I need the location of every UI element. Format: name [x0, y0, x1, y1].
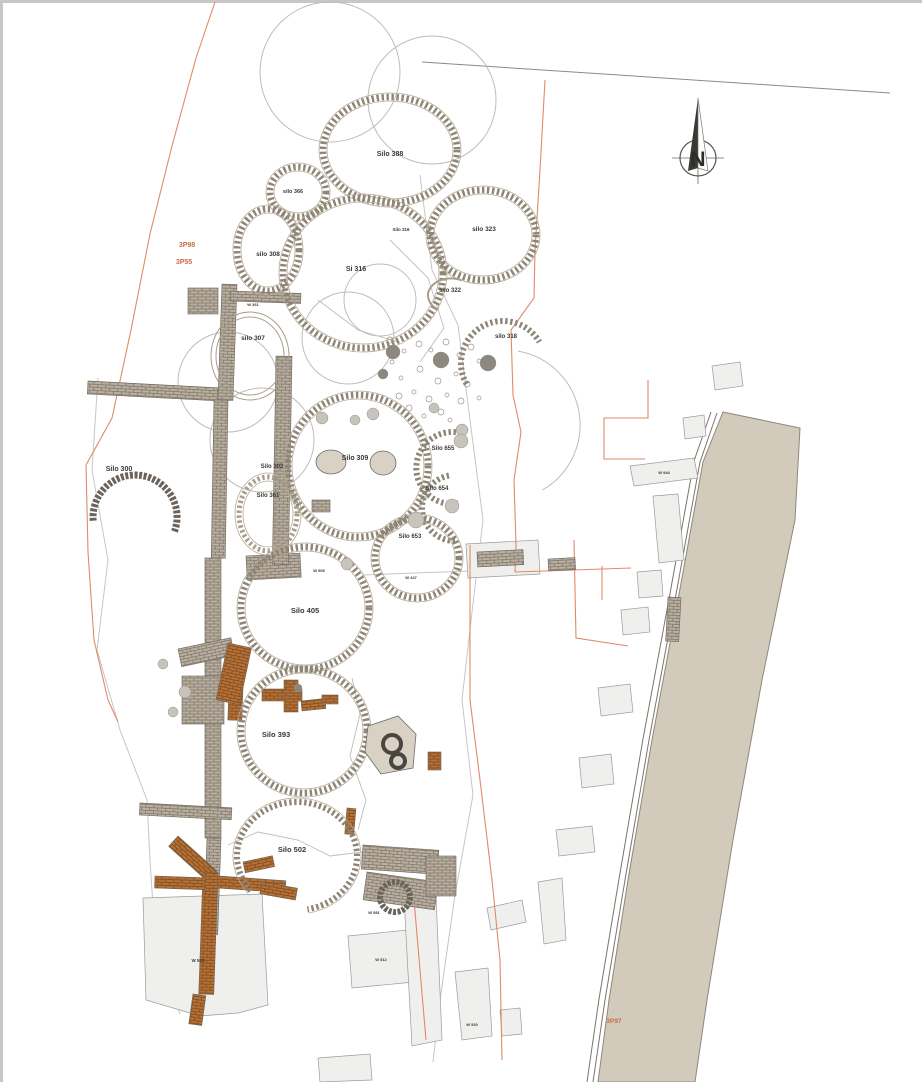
cadastral-line: [604, 380, 648, 459]
parcel: [487, 900, 526, 930]
feature-label: Silo 388: [377, 151, 404, 158]
parcel: [318, 1054, 372, 1082]
feature-label: silo 307: [241, 335, 265, 342]
pebble: [435, 378, 441, 384]
parcel: [538, 878, 566, 944]
tan-feature: [316, 450, 346, 474]
feature-label: W 944: [658, 470, 670, 475]
pit-feature: [367, 408, 379, 420]
feature-label: Silo 654: [426, 486, 449, 492]
cadastral-line: [574, 540, 628, 646]
pebble: [454, 372, 458, 376]
pebble: [390, 360, 394, 364]
pebble: [406, 405, 412, 411]
silo-316-inner: [287, 202, 439, 344]
pit-feature: [179, 686, 191, 698]
parcel: [500, 1008, 522, 1036]
rubble-patch: [312, 500, 330, 512]
survey-point-label: 3P55: [176, 259, 192, 266]
pit-feature: [454, 434, 468, 448]
stone-wall: [218, 284, 237, 400]
rubble-patch: [548, 558, 576, 571]
ochre-wall: [428, 752, 441, 770]
pit-feature: [350, 415, 360, 425]
feature-label: Silo 302: [261, 464, 284, 470]
pit-feature: [429, 403, 439, 413]
faint-arc: [518, 351, 580, 490]
silo-393-outer: [237, 665, 371, 797]
feature-label: Silo 361: [257, 493, 280, 499]
parcel: [404, 896, 442, 1046]
pit-feature: [341, 558, 353, 570]
feature-label: W 361: [247, 302, 259, 307]
pit-feature: [168, 707, 178, 717]
pebble: [396, 393, 402, 399]
silo-316-ring: [283, 198, 443, 348]
feature-label: W 525: [191, 958, 205, 963]
rubble-patch: [477, 550, 524, 567]
pit-feature: [158, 659, 168, 669]
pebble: [399, 376, 403, 380]
north-label: N: [690, 148, 705, 171]
pebble: [445, 393, 449, 397]
silo-308-outer: [233, 205, 303, 295]
stone-wall: [211, 400, 228, 558]
feature-label: W 447: [405, 575, 417, 580]
feature-label: Silo 653: [399, 534, 422, 540]
silo-393-ring: [241, 669, 367, 793]
feature-label: W 512: [375, 957, 387, 962]
feature-label: Silo 300: [106, 466, 133, 473]
silo-323-inner: [434, 194, 532, 276]
pit-feature: [378, 369, 388, 379]
parcel: [621, 607, 650, 635]
cadastral-line: [86, 2, 215, 722]
parcel: [598, 684, 633, 716]
pebble: [416, 341, 422, 347]
parcel: [712, 362, 743, 390]
silo-653-ring: [375, 518, 459, 598]
pebble: [429, 348, 433, 352]
survey-point-label: 3P98: [179, 242, 195, 249]
parcel: [556, 826, 595, 856]
pit-feature: [316, 412, 328, 424]
silo-653-inner: [379, 522, 455, 594]
ochre-wall: [155, 876, 205, 890]
rubble-patch: [666, 597, 681, 642]
pebble: [468, 344, 474, 350]
parcel: [637, 570, 663, 598]
pit-feature: [433, 352, 449, 368]
silo-308-ring: [237, 209, 299, 291]
pebble: [458, 398, 464, 404]
pebble: [422, 414, 426, 418]
feature-label: silo 318: [495, 334, 518, 340]
pebble: [402, 349, 406, 353]
feature-label: Silo 502: [278, 845, 306, 854]
ochre-wall: [322, 695, 338, 704]
stone-wall: [87, 381, 218, 401]
parcel: [455, 968, 492, 1040]
page-edge-left: [0, 0, 3, 1082]
silo-323-outer: [426, 186, 540, 284]
parcel: [683, 415, 706, 439]
faint-circle: [260, 2, 400, 142]
feature-label: Si 316: [346, 266, 366, 273]
ochre-wall: [243, 856, 275, 873]
stone-wall: [188, 288, 218, 314]
parcel: [653, 494, 684, 563]
feature-label: silo 323: [472, 226, 496, 233]
feature-label: silo 322: [439, 288, 462, 294]
ochre-wall: [260, 882, 298, 900]
pebble: [426, 396, 432, 402]
silo-300-ring: [93, 475, 177, 531]
pebble: [477, 396, 481, 400]
silo-388-outer: [319, 93, 461, 207]
silo-361-outer: [235, 473, 301, 555]
parcel: [579, 754, 614, 788]
trench-outline: [92, 378, 153, 906]
faint-circle: [344, 264, 416, 336]
silo-318-ring: [461, 321, 539, 384]
feature-label: Silo 316: [392, 227, 410, 232]
pit-feature: [445, 499, 459, 513]
feature-label: Silo 405: [291, 606, 319, 615]
survey-point-label: 3P97: [606, 1018, 622, 1025]
site-plan-canvas: Silo 388silo 366silo 308Si 316Silo 316si…: [0, 0, 922, 1082]
pit-feature: [294, 684, 302, 692]
pit-feature: [480, 355, 496, 371]
stone-wall: [426, 856, 456, 896]
silo-388-inner: [327, 101, 453, 199]
pebble: [417, 366, 423, 372]
pit-feature: [386, 345, 400, 359]
feature-label: silo 366: [283, 189, 303, 195]
page-edge-top: [0, 0, 922, 3]
silo-388-ring: [323, 97, 457, 203]
pebble: [443, 339, 449, 345]
feature-label: Silo 655: [432, 446, 455, 452]
silo-502-ring: [237, 802, 357, 909]
road-band: [598, 412, 800, 1082]
feature-label: Silo 309: [342, 455, 369, 462]
tan-feature: [370, 451, 396, 475]
pebble: [438, 409, 444, 415]
feature-label: Silo 393: [262, 730, 290, 739]
site-plan-page: Silo 388silo 366silo 308Si 316Silo 316si…: [0, 0, 922, 1082]
feature-label: silo 308: [256, 251, 280, 258]
pit-feature: [408, 512, 424, 528]
feature-label: W 520: [466, 1022, 478, 1027]
feature-label: W 905: [313, 568, 325, 573]
feature-label: W 581: [368, 910, 380, 915]
silo-323-ring: [430, 190, 536, 280]
pebble: [412, 390, 416, 394]
pebble: [448, 418, 452, 422]
